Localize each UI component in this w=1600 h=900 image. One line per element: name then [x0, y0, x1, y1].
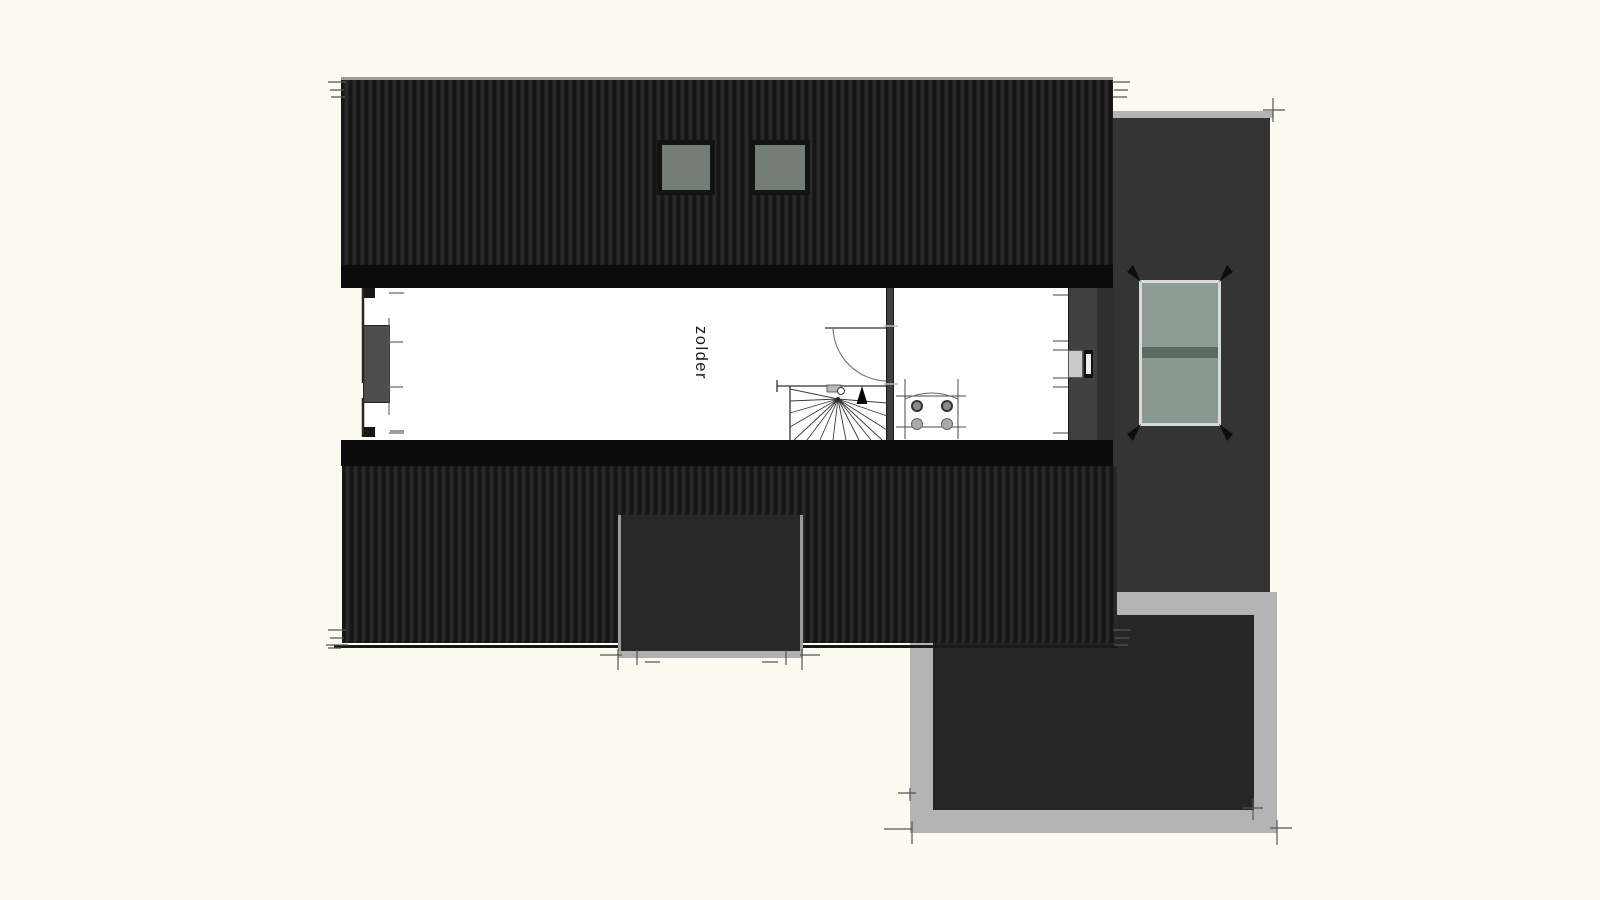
skylight-right: [750, 140, 810, 195]
roof-window-lower-pane: [1142, 356, 1218, 423]
right-roof-top-edge: [1113, 111, 1273, 118]
roof-window: [1139, 280, 1221, 426]
stairwell-wall: [886, 288, 894, 440]
dormer-block: [618, 515, 803, 651]
room-label: zolder: [692, 323, 710, 383]
chimney-shaft: [363, 325, 390, 403]
end-wall-window: [1068, 350, 1083, 378]
end-wall-door-panel: [1086, 354, 1091, 374]
dormer-bottom-edge: [618, 651, 803, 658]
upper-roof-slope: [341, 80, 1113, 265]
attic-floor-area: [365, 288, 1068, 440]
roof-window-divider: [1142, 347, 1218, 358]
right-end-wall-filler: [1097, 288, 1115, 440]
upper-eave-wall-band: [341, 265, 1113, 288]
skylight-left: [657, 140, 715, 195]
lower-eave-wall-band: [341, 440, 1113, 466]
floor-plan-canvas: zolder: [0, 0, 1600, 900]
